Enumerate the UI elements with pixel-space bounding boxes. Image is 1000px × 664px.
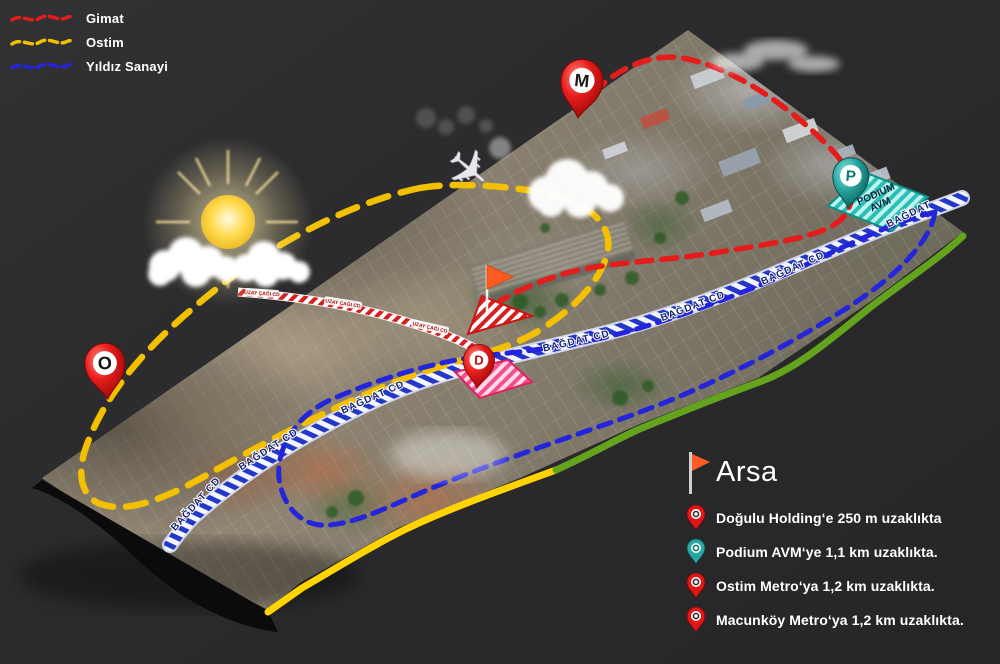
site-legend-title-row: Arsa bbox=[686, 450, 996, 496]
gimat-dash-icon bbox=[10, 10, 76, 26]
flag-icon bbox=[686, 450, 710, 496]
legend-item-text: Macunköy Metro‘ya 1,2 km uzaklıkta. bbox=[716, 612, 964, 628]
cloud-center bbox=[528, 159, 624, 218]
legend-row-yildiz: Yıldız Sanayi bbox=[10, 56, 168, 76]
pin-letter-o: O bbox=[97, 353, 113, 374]
legend-item-dogulu: Doğulu Holding‘e 250 m uzaklıkta bbox=[686, 504, 996, 531]
uzay-cagi-road: UZAY ÇAĞI CD UZAY ÇAĞI CD UZAY ÇAĞI CD bbox=[238, 288, 478, 350]
red-pin-icon bbox=[686, 504, 706, 531]
legend-item-podium: Podium AVM‘ye 1,1 km uzaklıkta. bbox=[686, 538, 996, 565]
pin-letter-p: P bbox=[845, 168, 857, 186]
pin-letter-m: M bbox=[573, 70, 590, 91]
legend-label-gimat: Gimat bbox=[86, 11, 124, 26]
legend-item-text: Ostim Metro‘ya 1,2 km uzaklıkta. bbox=[716, 578, 935, 594]
legend-item-macunkoy-metro: Macunköy Metro‘ya 1,2 km uzaklıkta. bbox=[686, 606, 996, 633]
red-pin-icon bbox=[686, 606, 706, 633]
route-legend: Gimat Ostim Yıldız Sanayi bbox=[10, 8, 168, 76]
ostim-metro-pin: O bbox=[83, 341, 128, 400]
legend-label-ostim: Ostim bbox=[86, 35, 124, 50]
cloud-wispy-topright bbox=[712, 40, 840, 72]
slide-canvas: UZAY ÇAĞI CD UZAY ÇAĞI CD UZAY ÇAĞI CD P… bbox=[0, 0, 1000, 664]
teal-pin-icon bbox=[686, 538, 706, 565]
legend-label-yildiz: Yıldız Sanayi bbox=[86, 59, 168, 74]
cloud-faint-bottom bbox=[390, 431, 506, 479]
legend-item-text: Podium AVM‘ye 1,1 km uzaklıkta. bbox=[716, 544, 938, 560]
legend-row-gimat: Gimat bbox=[10, 8, 168, 28]
road-label: BAĞDAT CD bbox=[541, 327, 610, 355]
legend-item-ostim-metro: Ostim Metro‘ya 1,2 km uzaklıkta. bbox=[686, 572, 996, 599]
red-pin-icon bbox=[686, 572, 706, 599]
legend-row-ostim: Ostim bbox=[10, 32, 168, 52]
macunkoy-metro-pin: M bbox=[557, 57, 605, 120]
site-legend-title: Arsa bbox=[716, 456, 778, 489]
green-curb-edge bbox=[556, 236, 963, 470]
pin-letter-d: D bbox=[474, 352, 485, 368]
site-legend: Arsa Doğulu Holding‘e 250 m uzaklıkta Po… bbox=[686, 450, 996, 640]
yildiz-dash-icon bbox=[10, 58, 76, 74]
ostim-dash-icon bbox=[10, 34, 76, 50]
legend-item-text: Doğulu Holding‘e 250 m uzaklıkta bbox=[716, 510, 942, 526]
